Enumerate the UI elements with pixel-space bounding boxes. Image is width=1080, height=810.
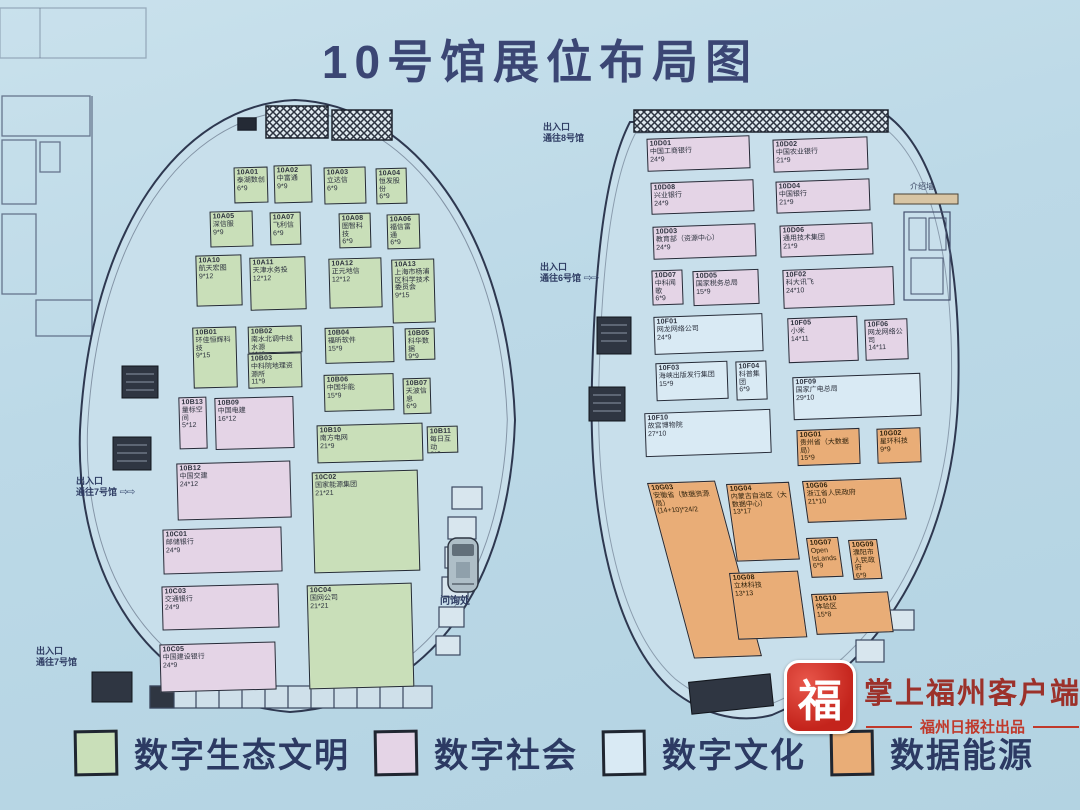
booth-name: 网龙网络公司 <box>868 328 906 345</box>
booth-10D01: 10D01中国工商银行24*9 <box>646 135 750 172</box>
booth-10G08: 10G08立林科技13*13 <box>729 571 807 640</box>
booth-id: 10D07 <box>654 272 679 281</box>
booth-size: 15*9 <box>659 379 725 389</box>
booth-name: Open IsLands <box>810 547 838 563</box>
booth-size: 6*9 <box>813 562 840 571</box>
entrance-arrow-icon: ⇨⇨ <box>584 273 599 284</box>
entrance-label-3: 出入口通往7号馆 <box>36 646 77 669</box>
booth-10D02: 10D02中国农业银行21*9 <box>772 136 868 172</box>
booth-name: 中科闻歌 <box>655 279 681 296</box>
watermark-title: 掌上福州客户端 <box>864 670 1080 712</box>
legend-label-eco: 数字生态文明 <box>134 728 350 777</box>
entrance-label-0: 出入口通往8号馆 <box>543 122 584 145</box>
booth-10G06: 10G06浙江省人民政府21*10 <box>802 478 907 523</box>
booth-10G07: 10G07Open IsLands6*9 <box>806 537 844 578</box>
booth-10F04: 10F04科普集团6*9 <box>735 360 767 400</box>
booth-10F10: 10F10故宫博物院27*10 <box>644 409 771 457</box>
booth-10F02: 10F02科大讯飞24*10 <box>782 266 894 309</box>
booth-size: 14*11 <box>868 344 905 353</box>
booth-size: 15*9 <box>800 453 857 463</box>
booth-size: 15*8 <box>816 609 888 619</box>
booth-10D08: 10D08兴业银行24*9 <box>650 179 754 215</box>
booth-10F05: 10F05小米14*11 <box>787 316 859 363</box>
legend-item-eco: 数字生态文明 <box>74 728 350 777</box>
entrance-label-2: 出入口通往7号馆 ⇨⇨ <box>76 476 134 500</box>
booth-size: 6*9 <box>856 572 880 580</box>
booth-name: 濮阳市人民政府 <box>852 549 878 573</box>
booth-10F06: 10F06网龙网络公司14*11 <box>864 318 908 360</box>
legend-swatch-society <box>374 729 419 776</box>
booth-10D06: 10D06通用技术集团21*9 <box>779 222 873 257</box>
booth-size: 15*9 <box>696 287 756 297</box>
watermark-subtitle: 福州日报社出品 <box>866 716 1079 737</box>
booth-10F01: 10F01网龙网络公司24*9 <box>653 313 763 355</box>
booth-size: 14*11 <box>791 334 855 344</box>
booth-10G01: 10G01贵州省（大数据局）15*9 <box>796 428 860 466</box>
legend-item-society: 数字社会 <box>374 728 578 777</box>
legend-item-culture: 数字文化 <box>602 728 806 777</box>
booth-10D04: 10D04中国银行21*9 <box>775 178 870 213</box>
booth-10F09: 10F09国家广电总局29*10 <box>792 373 921 420</box>
booth-size: 13*13 <box>734 588 798 598</box>
booth-10D03: 10D03教育部（资源中心）24*9 <box>652 223 756 260</box>
booth-10D07: 10D07中科闻歌6*9 <box>651 269 683 305</box>
entrance-label-1: 出入口通往6号馆 ⇨⇨ <box>540 262 598 286</box>
booth-10G09: 10G09濮阳市人民政府6*9 <box>848 539 883 580</box>
legend-label-society: 数字社会 <box>434 728 578 777</box>
inquiry-desk-label: 问询处 <box>440 596 470 609</box>
booth-10D05: 10D05国家税务总局15*9 <box>692 269 759 306</box>
booth-10G04: 10G04内蒙古自治区（大数据中心）13*17 <box>726 482 800 562</box>
booth-10F03: 10F03海峡出版发行集团15*9 <box>655 361 728 401</box>
booth-10G02: 10G02星环科技9*9 <box>876 427 921 464</box>
intro-wall-label: 介绍墙 <box>910 182 934 192</box>
legend-swatch-eco <box>74 729 119 776</box>
watermark: 福 掌上福州客户端 福州日报社出品 <box>784 660 1080 737</box>
booth-size: 13*17 <box>733 507 791 517</box>
booth-size: (14+10)*24/2 <box>657 506 721 516</box>
floorplan-photo: 10号馆展位布局图 10A01泰湖数创6*910A02中富通9*910A03立达… <box>0 0 1080 810</box>
entrance-arrow-icon: ⇨⇨ <box>120 487 135 498</box>
booth-size: 9*9 <box>880 445 918 454</box>
booth-10G10: 10G10体验区15*8 <box>811 591 894 635</box>
fuzhou-client-logo-icon: 福 <box>784 660 856 734</box>
booth-name: 科普集团 <box>739 370 765 387</box>
booth-size: 6*9 <box>655 295 680 304</box>
booth-size: 6*9 <box>739 386 764 395</box>
watermark-text: 掌上福州客户端 福州日报社出品 <box>864 660 1080 737</box>
page-title: 10号馆展位布局图 <box>0 26 1080 92</box>
legend-swatch-culture <box>602 729 647 776</box>
